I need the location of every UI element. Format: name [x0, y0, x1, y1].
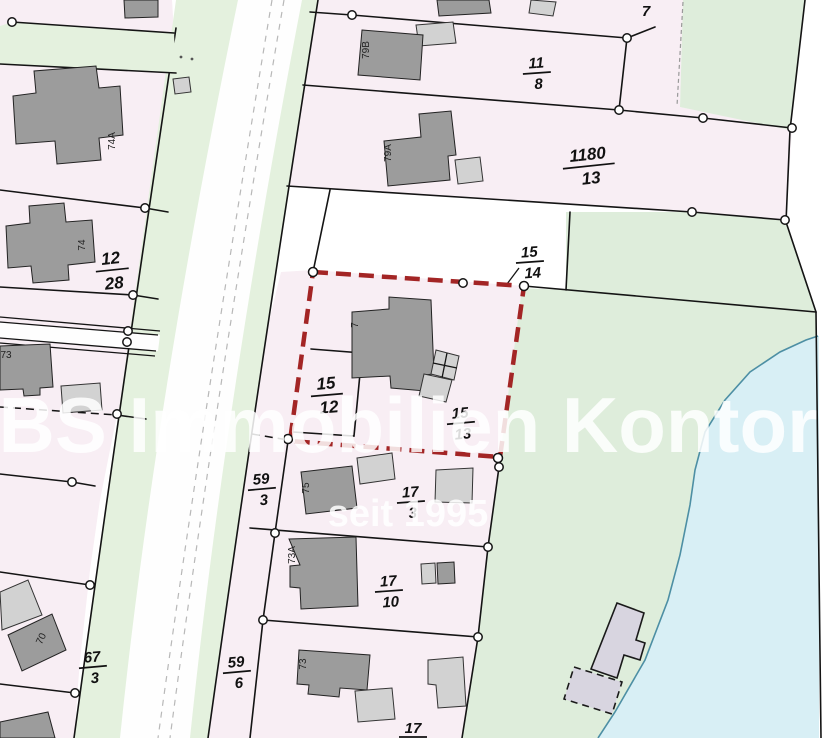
point: [459, 279, 467, 287]
map-canvas: 7 11 8 1180 13 12 28 15 14 15 12 15: [0, 0, 828, 738]
point: [71, 689, 79, 697]
red-corner-point: [520, 282, 529, 291]
svg-text:59: 59: [252, 470, 271, 488]
cadastral-map: 7 11 8 1180 13 12 28 15 14 15 12 15: [0, 0, 828, 738]
label-building-79A: 79A: [383, 144, 394, 162]
point: [129, 291, 137, 299]
watermark-line2: seit 1995: [328, 493, 489, 535]
point: [124, 327, 132, 335]
point: [781, 216, 789, 224]
label-15-14: 15 14: [515, 243, 546, 283]
point: [141, 204, 149, 212]
point: [788, 124, 796, 132]
svg-text:67: 67: [83, 648, 102, 666]
point: [86, 581, 94, 589]
watermark-line1: BS Immobilien Kontor: [0, 381, 818, 469]
label-building-73A: 73A: [287, 546, 298, 564]
building-top-middle-shed: [529, 0, 556, 16]
building-73-annex: [355, 688, 395, 722]
building-79A-annex: [455, 157, 483, 184]
svg-text:59: 59: [227, 653, 246, 671]
label-building-74: 74: [77, 239, 88, 251]
point: [68, 478, 76, 486]
building-17-10-shed-right: [437, 562, 455, 584]
point: [8, 18, 16, 26]
label-building-74A: 74A: [107, 132, 118, 150]
point: [699, 114, 707, 122]
svg-text:17: 17: [405, 720, 422, 737]
svg-text:15: 15: [520, 243, 538, 261]
svg-text:12: 12: [100, 248, 121, 269]
label-building-75: 75: [301, 482, 312, 494]
point: [615, 106, 623, 114]
svg-text:1180: 1180: [568, 143, 607, 166]
point: [688, 208, 696, 216]
svg-text:10: 10: [382, 593, 400, 611]
point: [484, 543, 492, 551]
point: [123, 338, 131, 346]
red-corner-point: [309, 268, 318, 277]
svg-text:14: 14: [524, 264, 542, 282]
label-building-7: 7: [350, 322, 361, 328]
building-top-left-corner: [124, 0, 158, 18]
svg-text:11: 11: [528, 55, 545, 73]
point: [348, 11, 356, 19]
label-building-73-left: 73: [0, 350, 12, 361]
building-roadside-shed: [173, 77, 191, 94]
leader-15-14: [507, 268, 519, 284]
building-17-10-shed-left: [421, 563, 436, 584]
green-patch-top-right: [680, 0, 805, 130]
boundary-gap-left: [313, 190, 330, 272]
svg-text:28: 28: [103, 273, 125, 294]
survey-dot-1: [180, 56, 183, 59]
building-top-middle: [437, 0, 491, 16]
point: [623, 34, 631, 42]
point: [271, 529, 279, 537]
label-building-73: 73: [298, 658, 309, 670]
label-building-79B: 79B: [361, 41, 372, 59]
survey-dot-2: [191, 58, 194, 61]
point: [259, 616, 267, 624]
label-parcel-7: 7: [642, 3, 651, 20]
svg-text:13: 13: [581, 168, 602, 189]
building-7-main: [352, 297, 434, 391]
point: [474, 633, 482, 641]
svg-text:17: 17: [379, 572, 397, 590]
